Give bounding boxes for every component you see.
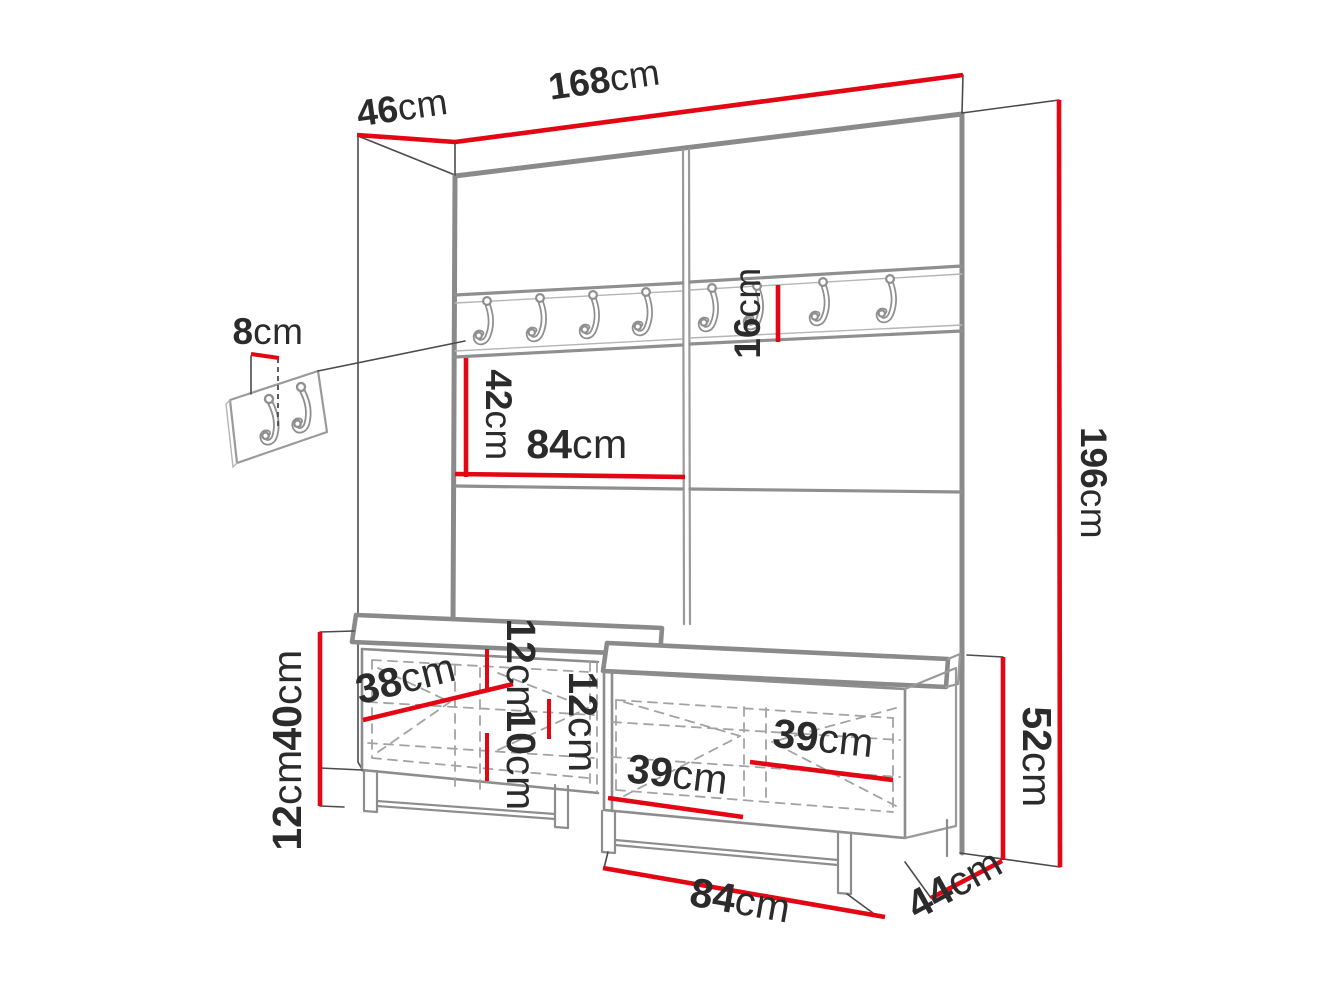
dim-label-bench-body-height: 40cm — [264, 649, 310, 750]
right-bench-legs — [602, 811, 947, 894]
dim-label-total-height: 196cm — [1073, 427, 1114, 539]
dim-label-total-depth: 46cm — [354, 81, 450, 134]
furniture-dimension-diagram: 168cm 46cm 196cm 8cm 16cm 42cm 84cm 38cm… — [0, 0, 1333, 1000]
leader-line — [318, 341, 465, 371]
dim-label-bench-depth: 44cm — [899, 839, 1010, 928]
dim-label-bench-width: 84cm — [687, 869, 795, 932]
dim-label-bench-total-height: 52cm — [1014, 706, 1060, 807]
small-hook-panel — [226, 341, 465, 467]
dim-line-total-width — [455, 75, 963, 142]
dim-label-total-width: 168cm — [546, 52, 663, 108]
dim-label-shelf-gap-right: 12cm — [560, 671, 606, 772]
panel-center-divider-2 — [689, 149, 690, 624]
dim-label-shelf-gap-lower: 10cm — [498, 709, 544, 810]
panel-mid-division-left — [455, 486, 682, 489]
hook-rail-bottom-left — [455, 345, 682, 357]
dim-label-compartment-right: 39cm — [771, 710, 877, 766]
panel-mid-division-right — [690, 489, 962, 492]
dim-label-panel-half-width: 84cm — [526, 421, 627, 467]
panel-center-divider — [683, 150, 684, 624]
coat-hooks-row — [476, 275, 894, 342]
hook-rail-bottom-left-inner — [455, 339, 682, 351]
dim-label-compartment-left: 39cm — [625, 745, 731, 803]
right-bench-side-face — [905, 668, 956, 838]
dim-line-small-panel-offset — [251, 354, 279, 358]
dim-label-leg-height: 12cm — [264, 749, 310, 850]
dim-label-hook-rail-height: 16cm — [727, 267, 768, 358]
dim-label-small-panel-offset: 8cm — [233, 311, 304, 352]
diagram-canvas: 168cm 46cm 196cm 8cm 16cm 42cm 84cm 38cm… — [0, 0, 1333, 1000]
dim-label-shelf-gap-upper: 12cm — [498, 618, 544, 719]
dim-label-open-section-height: 42cm — [478, 369, 519, 460]
dim-line-panel-half-width — [455, 474, 685, 477]
